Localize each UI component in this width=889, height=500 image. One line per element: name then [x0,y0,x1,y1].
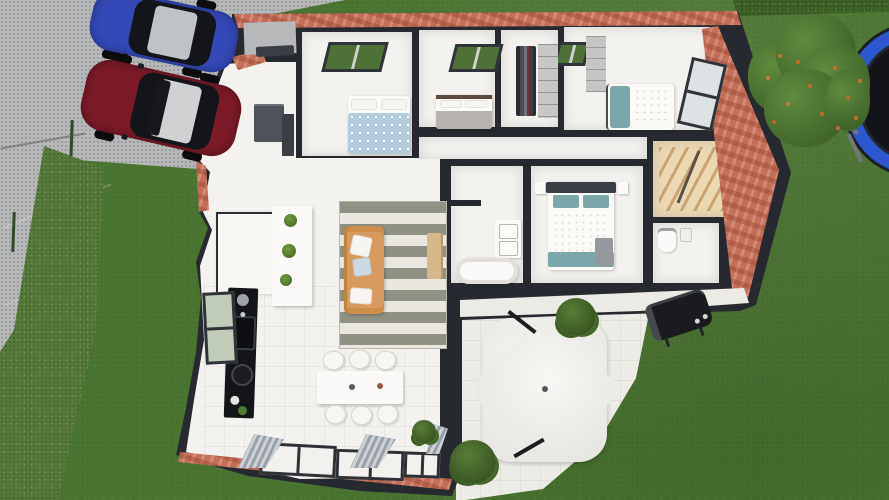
herb-pot [238,406,247,415]
island-plant [282,244,296,258]
entry-cabinet [254,104,284,142]
bedroom1-window [321,42,388,72]
dining-chair [349,350,370,369]
floor-hallway [419,137,647,159]
bed-bedroom1 [348,96,410,154]
closet-shelves [538,44,558,118]
island-plant [280,274,292,286]
dining-chair [351,406,372,425]
tv-sideboard [427,233,443,279]
patio-door-window [404,451,441,478]
headboard [546,182,616,193]
bathroom-partition [451,200,481,206]
jar [230,396,239,405]
bed-bedroom2 [436,95,492,129]
headboard [436,95,492,99]
sofa [344,226,384,314]
nightstand [535,182,545,194]
indoor-plant [412,420,436,444]
dining-chair [325,405,346,424]
quilting [634,88,670,126]
dining-table [317,371,403,404]
floor-plan-scene [0,0,889,500]
bedroom2-window [449,44,504,72]
teal-bolster [610,86,630,128]
umbrella-pole [542,386,548,392]
hob [231,364,254,387]
nightstand [618,182,628,194]
wc-basin [680,228,692,242]
vanity [495,220,521,258]
teal-pillow [553,195,579,208]
kitchen-island [272,206,312,306]
bathtub [456,258,518,284]
front-door [256,45,294,57]
bed-master [548,182,614,270]
dining-chair [323,351,344,370]
dining-chair [375,351,396,370]
patio-shrub [556,298,596,336]
tableware [349,384,355,390]
toilet [658,228,676,252]
kitchen-storage-unit [216,212,274,294]
tableware [377,383,383,389]
dining-chair [377,405,398,424]
kitchen-window [202,291,238,365]
pot [237,294,249,306]
teal-pillow [583,195,609,208]
grey-throw [595,238,613,266]
duvet-gray [436,111,492,129]
patio-shrub [450,440,496,484]
duvet-blue [348,113,410,154]
fruit-tree [748,14,873,154]
hanging-clothes [516,46,536,116]
island-plant [284,214,297,227]
bed-bedroom3 [606,84,674,130]
bedroom1-wall-panel [282,114,294,156]
tree-fruits [778,54,782,58]
bedroom3-shelf [586,36,606,92]
patio-umbrella [483,318,607,462]
stair-treads [659,147,725,211]
